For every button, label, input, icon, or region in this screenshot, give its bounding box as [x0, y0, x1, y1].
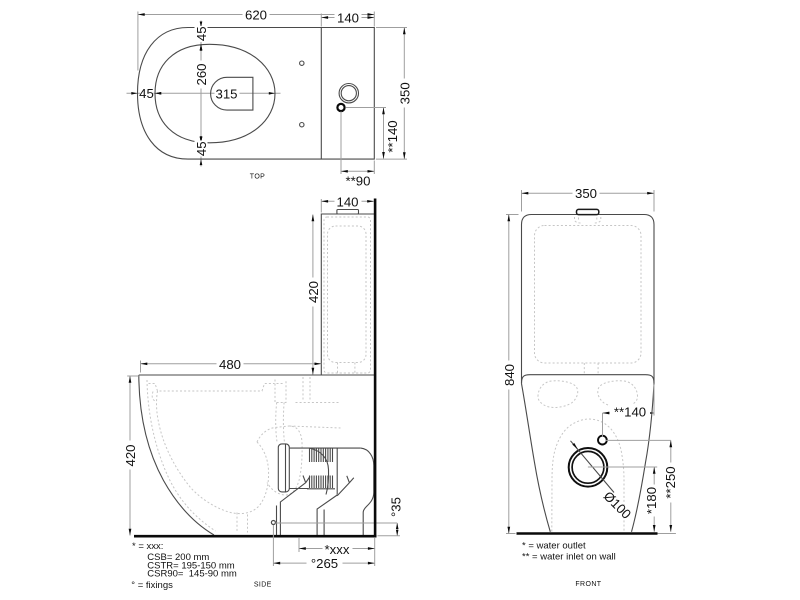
svg-text:840: 840: [502, 364, 517, 386]
svg-text:TOP: TOP: [250, 174, 265, 181]
svg-text:**250: **250: [663, 466, 678, 498]
svg-text:420: 420: [306, 281, 321, 303]
svg-text:260: 260: [194, 63, 209, 85]
svg-text:*xxx: *xxx: [325, 542, 350, 557]
svg-text:140: 140: [337, 11, 359, 26]
svg-text:°265: °265: [311, 556, 338, 571]
svg-text:* = water outlet: * = water outlet: [522, 541, 586, 552]
svg-text:FRONT: FRONT: [575, 581, 601, 588]
svg-text:480: 480: [219, 357, 241, 372]
svg-text:** = water inlet on wall: ** = water inlet on wall: [522, 552, 616, 563]
svg-text:620: 620: [245, 8, 267, 23]
svg-text:350: 350: [575, 186, 597, 201]
svg-text:° = fixings: ° = fixings: [131, 580, 173, 591]
svg-text:45: 45: [194, 141, 209, 156]
svg-text:°35: °35: [389, 497, 404, 517]
svg-text:420: 420: [123, 444, 138, 466]
svg-text:* = xxx:: * = xxx:: [132, 541, 163, 552]
svg-text:315: 315: [215, 86, 237, 101]
svg-text:140: 140: [336, 194, 358, 209]
svg-text:CSR90= 145-90 mm: CSR90= 145-90 mm: [147, 569, 237, 580]
svg-text:**140: **140: [614, 405, 646, 420]
svg-text:SIDE: SIDE: [254, 582, 272, 589]
svg-text:**90: **90: [346, 174, 371, 189]
svg-text:45: 45: [139, 86, 154, 101]
svg-text:45: 45: [194, 26, 209, 41]
svg-text:**140: **140: [385, 120, 400, 152]
svg-text:*180: *180: [644, 487, 659, 514]
svg-text:350: 350: [397, 82, 412, 104]
